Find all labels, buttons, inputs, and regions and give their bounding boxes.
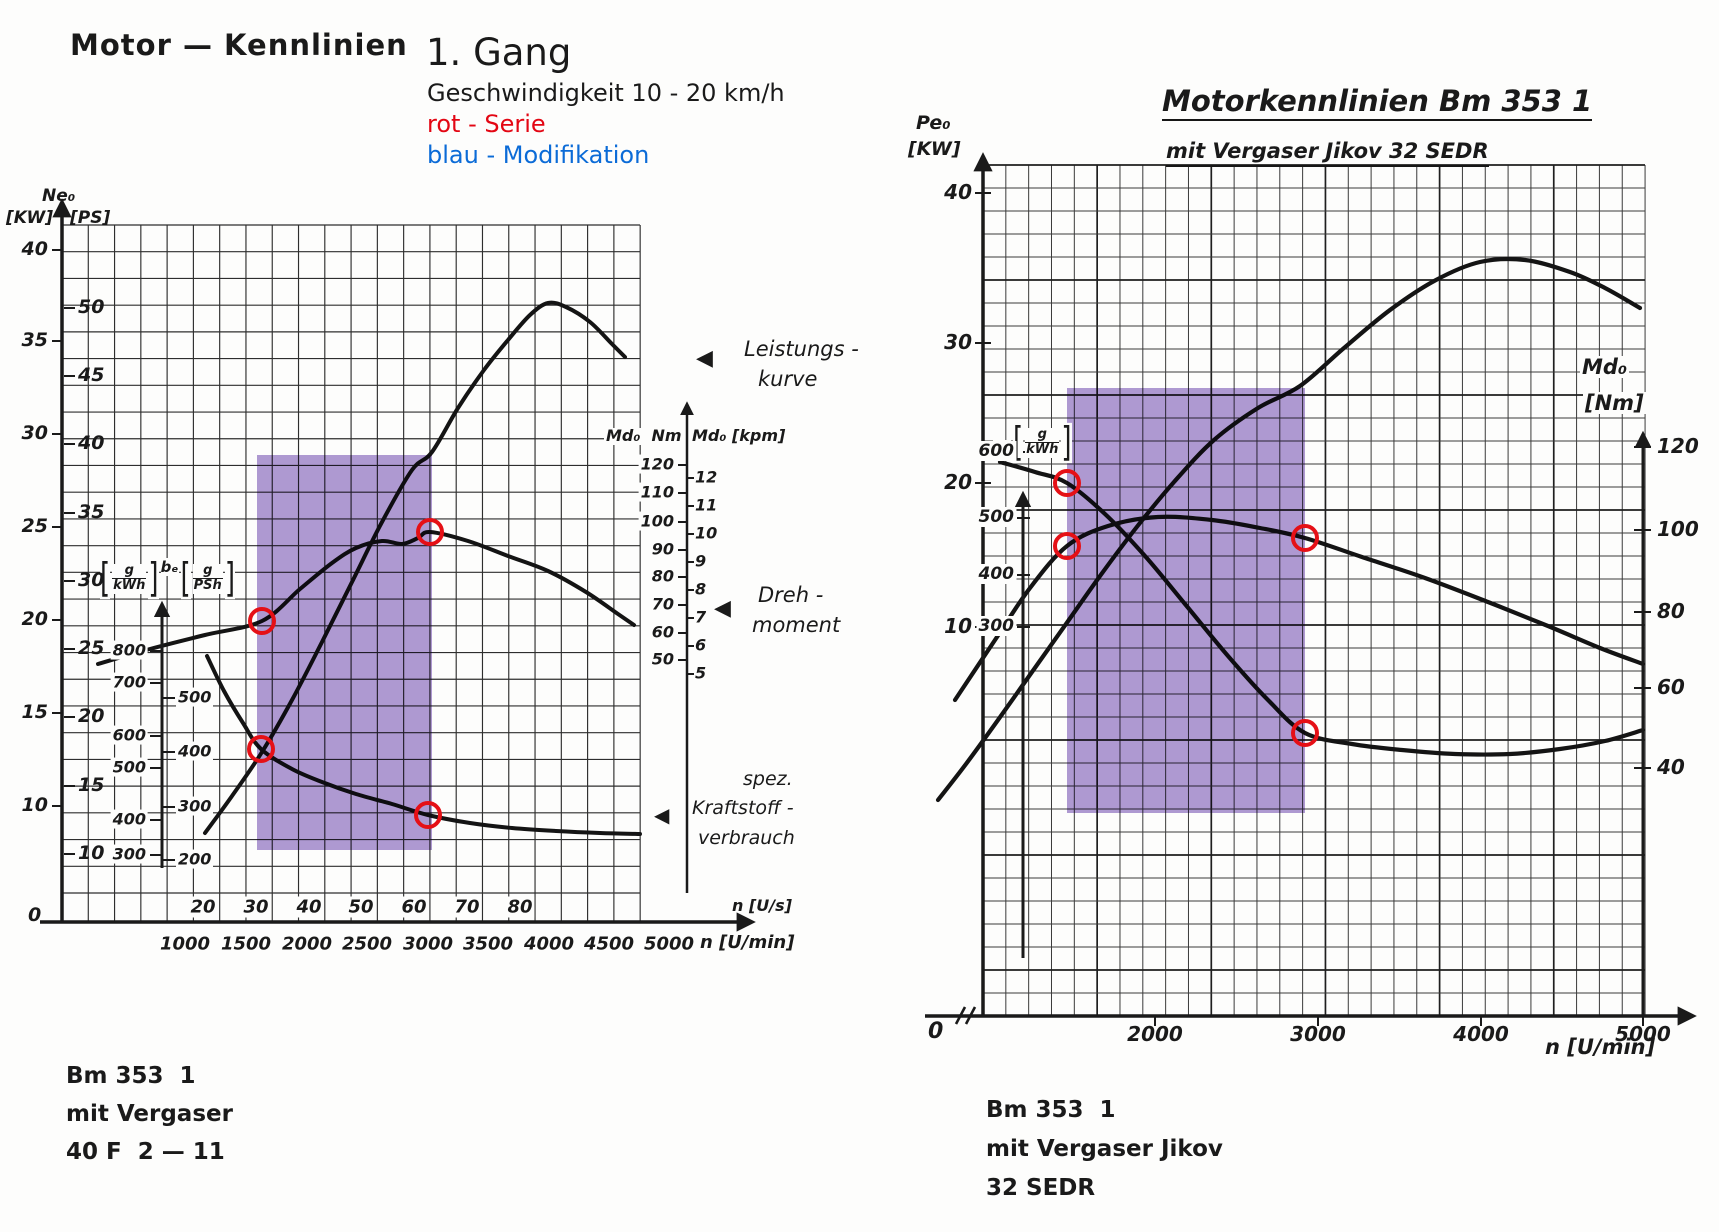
g-per-kwh-fraction: g kWh (112, 564, 146, 594)
right-chart-title: Motorkennlinien Bm 353 1 (1162, 86, 1592, 121)
right-pe-tick-10: 10 (944, 614, 972, 638)
right-origin-label: 0 (928, 1020, 943, 1043)
left-x-axis-label-us: n [U/s] (732, 898, 792, 915)
left-torque-header-nm: Md₀ Nm (604, 428, 684, 445)
left-kw-tick-30: 30 (22, 422, 48, 444)
left-y-axis-title: Ne₀ (42, 188, 75, 206)
right-x-tick-4000: 4000 (1453, 1022, 1509, 1046)
left-nm-tick-80: 80 (650, 567, 676, 586)
left-kpm-tick-7: 7 (695, 608, 706, 627)
arrow-left-icon: ◀ (696, 347, 713, 370)
bracket-close-icon: ] (148, 559, 158, 599)
g-per-kwh-fraction: g kWh (1025, 428, 1059, 458)
left-us-tick-60: 60 (399, 897, 428, 918)
left-us-tick-30: 30 (241, 897, 270, 918)
left-gpsh-tick-400: 400 (176, 742, 213, 761)
left-kw-tick-10: 10 (22, 794, 48, 816)
left-kpm-tick-11: 11 (695, 496, 717, 515)
bracket-open-icon: [ (181, 559, 191, 599)
bracket-close-icon: ] (225, 559, 235, 599)
left-nm-tick-50: 50 (650, 650, 676, 669)
right-y-axis-title: Pe₀ (916, 114, 951, 134)
right-be-tick-400: 400 (977, 564, 1017, 584)
left-umin-tick-3500: 3500 (463, 934, 513, 955)
left-gpsh-tick-200: 200 (176, 850, 213, 869)
left-gkwh-tick-800: 800 (111, 641, 148, 660)
annotation-power-line1: Leistungs - (744, 338, 859, 360)
right-pe-tick-30: 30 (944, 330, 972, 354)
right-nm-tick-60: 60 (1657, 675, 1685, 699)
arrow-left-icon: ◀ (654, 805, 669, 826)
left-us-tick-20: 20 (188, 897, 217, 918)
left-gpsh-tick-500: 500 (176, 688, 213, 707)
right-be-tick-600: 600 (977, 441, 1017, 461)
left-origin-label: 0 (28, 906, 41, 926)
left-ps-tick-45: 45 (78, 364, 104, 386)
left-kw-tick-20: 20 (22, 608, 48, 630)
be-symbol: bₑ (161, 558, 179, 576)
left-torque-header-kpm: Md₀ [kpm] (692, 428, 785, 445)
left-us-tick-50: 50 (346, 897, 375, 918)
left-kpm-tick-12: 12 (695, 468, 717, 487)
left-nm-tick-60: 60 (650, 623, 676, 642)
left-umin-tick-4500: 4500 (584, 934, 634, 955)
right-footer-carburetor: mit Vergaser Jikov (986, 1137, 1223, 1161)
left-ps-tick-35: 35 (78, 501, 104, 523)
fraction-denominator: PSh (193, 578, 223, 593)
annotation-torque-line2: moment (752, 614, 840, 636)
left-ps-tick-25: 25 (78, 637, 104, 659)
left-umin-tick-3000: 3000 (403, 934, 453, 955)
left-ps-tick-30: 30 (78, 569, 104, 591)
left-nm-tick-120: 120 (639, 455, 676, 474)
highlight-operating-range (257, 455, 432, 850)
left-nm-tick-100: 100 (639, 512, 676, 531)
right-footer-type: 32 SEDR (986, 1176, 1095, 1200)
annotation-power-line2: kurve (758, 368, 817, 390)
left-nm-tick-110: 110 (639, 483, 676, 502)
right-x-tick-5000: 5000 (1615, 1022, 1671, 1046)
charts-canvas (0, 0, 1719, 1232)
left-kpm-tick-10: 10 (695, 524, 717, 543)
left-nm-tick-70: 70 (650, 595, 676, 614)
left-footer-model: Bm 353 1 (66, 1064, 196, 1088)
left-kw-tick-40: 40 (22, 238, 48, 260)
right-y-axis-unit: [KW] (908, 140, 961, 160)
fraction-numerator: g (203, 564, 212, 578)
right-nm-tick-100: 100 (1657, 517, 1699, 541)
left-y-axis-unit-ps: [PS] (70, 210, 110, 228)
left-gkwh-tick-600: 600 (111, 726, 148, 745)
left-kpm-tick-6: 6 (695, 636, 706, 655)
left-gpsh-tick-300: 300 (176, 797, 213, 816)
g-per-psh-fraction: g PSh (193, 564, 223, 594)
annotation-torque-line1: Dreh - (758, 584, 823, 606)
right-be-tick-500: 500 (977, 507, 1017, 527)
right-chart-subtitle: mit Vergaser Jikov 32 SEDR (1166, 140, 1489, 167)
left-umin-tick-5000: 5000 (644, 934, 694, 955)
left-nm-tick-90: 90 (650, 540, 676, 559)
annotation-fuel-line1: spez. (743, 770, 793, 790)
left-ps-tick-15: 15 (78, 774, 104, 796)
left-kw-tick-15: 15 (22, 701, 48, 723)
right-x-tick-2000: 2000 (1127, 1022, 1183, 1046)
left-gkwh-tick-700: 700 (111, 673, 148, 692)
left-umin-tick-4000: 4000 (524, 934, 574, 955)
right-pe-tick-20: 20 (944, 470, 972, 494)
right-pe-tick-40: 40 (944, 180, 972, 204)
left-umin-tick-2500: 2500 (342, 934, 392, 955)
right-nm-tick-80: 80 (1657, 599, 1685, 623)
left-us-tick-80: 80 (505, 897, 534, 918)
left-gkwh-tick-300: 300 (111, 845, 148, 864)
left-umin-tick-1000: 1000 (160, 934, 210, 955)
left-gkwh-tick-400: 400 (111, 810, 148, 829)
left-umin-tick-1500: 1500 (221, 934, 271, 955)
left-kpm-tick-8: 8 (695, 580, 706, 599)
left-kpm-tick-5: 5 (695, 664, 706, 683)
annotation-fuel-line2: Kraftstoff - (692, 799, 794, 819)
fraction-denominator: kWh (112, 578, 146, 593)
left-ps-tick-20: 20 (78, 705, 104, 727)
left-fuel-scale-header: [ g kWh ] bₑ [ g PSh ] (100, 564, 235, 594)
left-kw-tick-25: 25 (22, 515, 48, 537)
right-nm-tick-120: 120 (1657, 434, 1699, 458)
fraction-denominator: kWh (1025, 442, 1059, 457)
right-torque-header-unit: [Nm] (1583, 392, 1646, 414)
left-ps-tick-10: 10 (78, 842, 104, 864)
fraction-numerator: g (1038, 428, 1047, 442)
left-ps-tick-40: 40 (78, 432, 104, 454)
highlight-operating-range (1067, 388, 1305, 813)
left-x-axis-label-umin: n [U/min] (700, 934, 794, 953)
left-us-tick-40: 40 (294, 897, 323, 918)
arrow-left-icon: ◀ (714, 597, 731, 620)
left-footer-carburetor: mit Vergaser (66, 1102, 233, 1126)
right-torque-header-symbol: Md₀ (1580, 356, 1629, 378)
right-be-tick-300: 300 (977, 616, 1017, 636)
left-us-tick-70: 70 (452, 897, 481, 918)
left-y-axis-unit-kw: [KW] (6, 210, 53, 228)
left-ps-tick-50: 50 (78, 296, 104, 318)
left-gkwh-tick-500: 500 (111, 758, 148, 777)
right-x-tick-3000: 3000 (1290, 1022, 1346, 1046)
bracket-close-icon: ] (1061, 423, 1071, 463)
left-umin-tick-2000: 2000 (282, 934, 332, 955)
left-footer-type: 40 F 2 — 11 (66, 1140, 225, 1164)
right-nm-tick-40: 40 (1657, 755, 1685, 779)
fraction-numerator: g (125, 564, 134, 578)
left-kpm-tick-9: 9 (695, 552, 706, 571)
left-kw-tick-35: 35 (22, 329, 48, 351)
annotation-fuel-line3: verbrauch (698, 829, 795, 849)
right-footer-model: Bm 353 1 (986, 1098, 1116, 1122)
scanned-engine-chart-page: { "header": { "title": "Motor — Kennlini… (0, 0, 1719, 1232)
